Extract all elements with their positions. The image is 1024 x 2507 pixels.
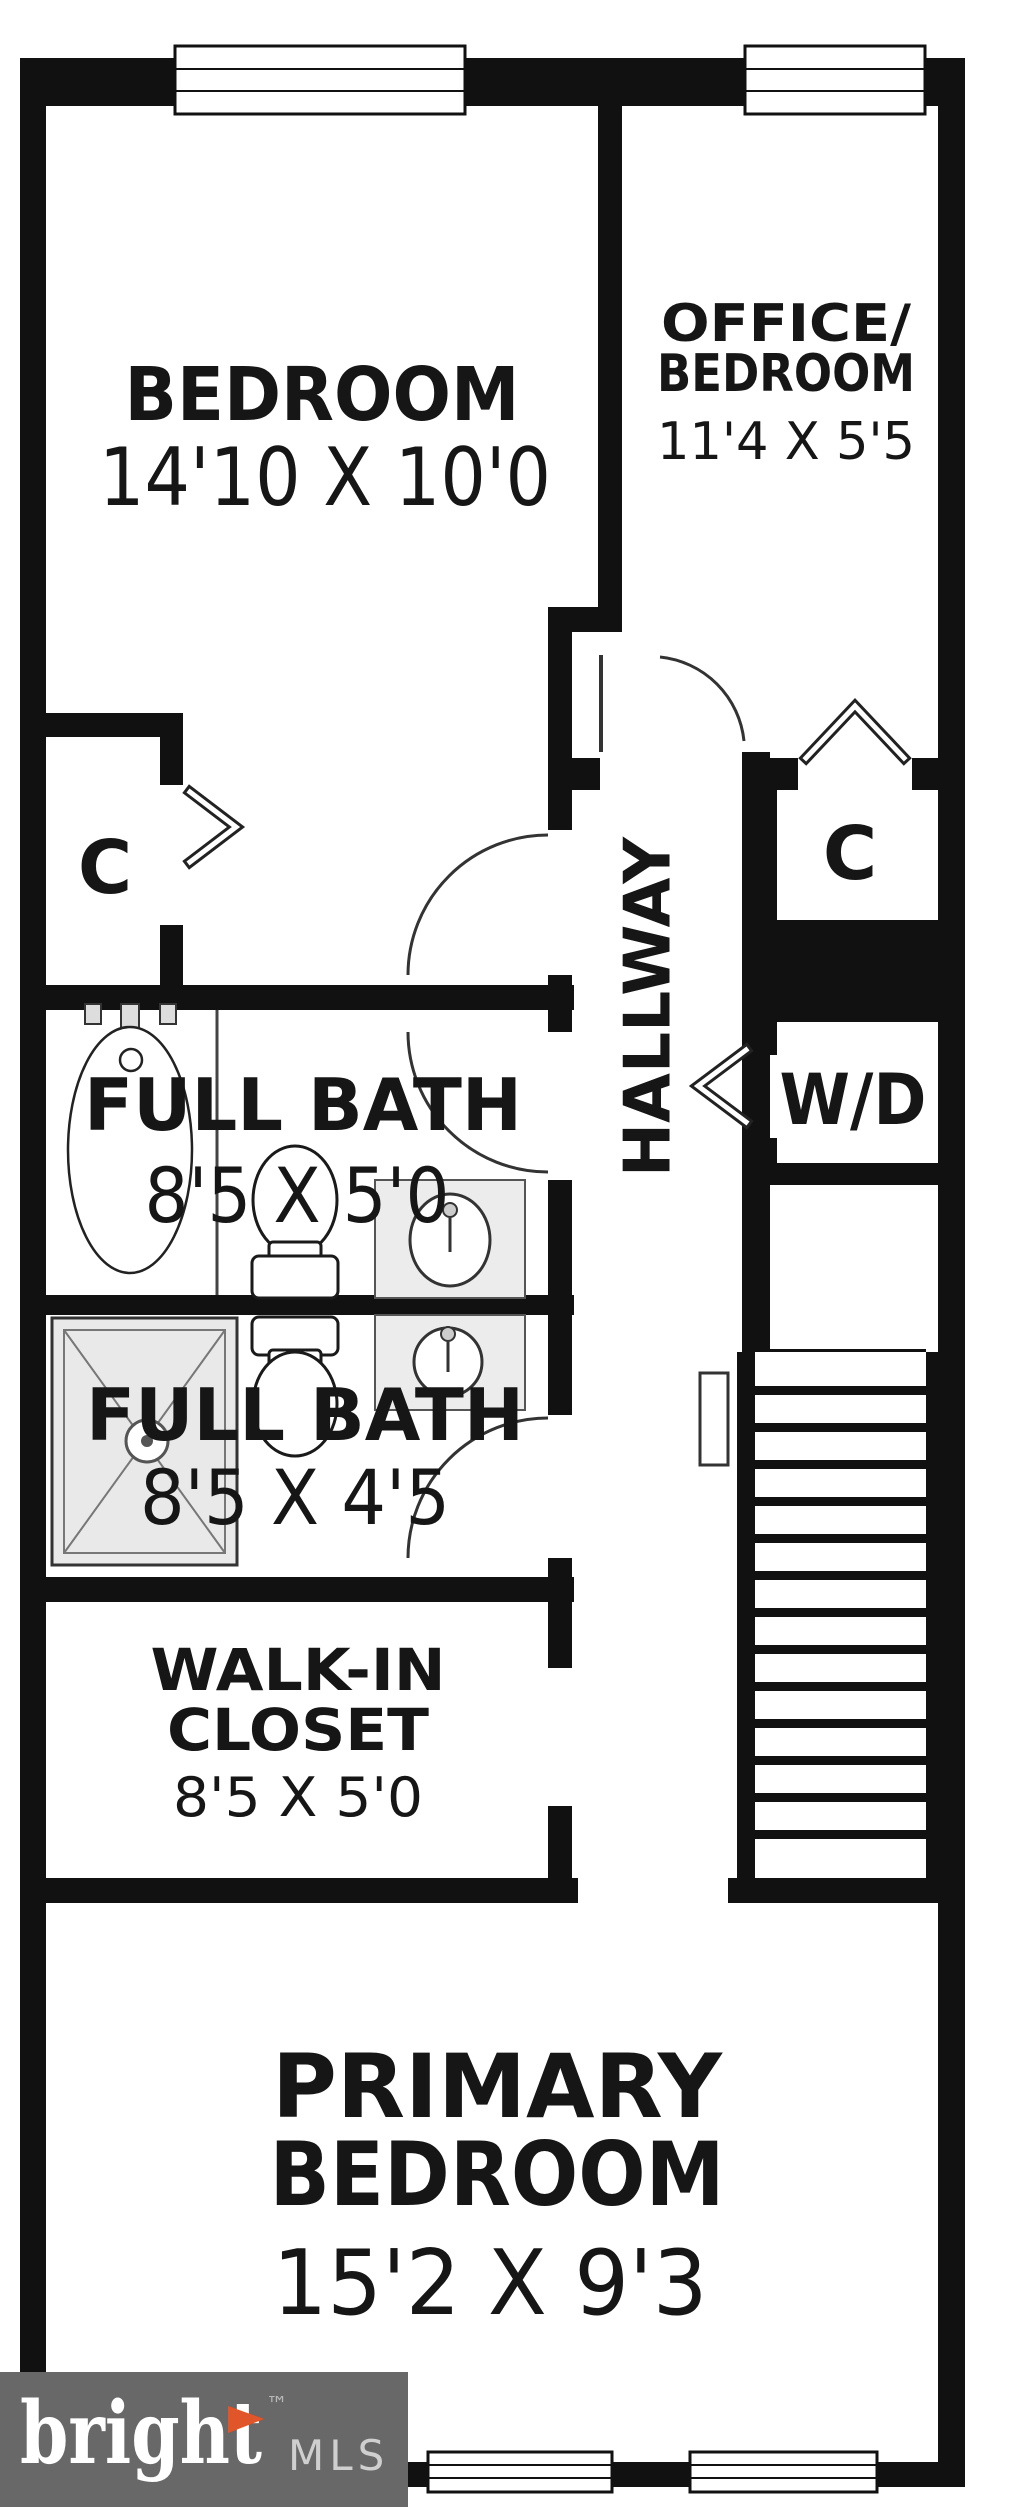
stair-top-edge bbox=[755, 1349, 926, 1352]
door-arc-office bbox=[660, 657, 744, 741]
wall-closet-right-left bbox=[755, 790, 777, 920]
window bbox=[175, 46, 465, 114]
wall-closet-left-top bbox=[45, 713, 183, 737]
bath-lower-dims: 8'5 X 4'5 bbox=[140, 1453, 450, 1542]
bath-upper-label: FULL BATH bbox=[84, 1063, 522, 1147]
window bbox=[428, 2452, 612, 2492]
stair-rail-left bbox=[737, 1352, 755, 1878]
walkin-label-line2: CLOSET bbox=[167, 1696, 429, 1764]
laundry-label: W/D bbox=[780, 1059, 927, 1141]
closet-right-door-chevron bbox=[806, 706, 904, 758]
logo-mls-text: MLS bbox=[288, 2431, 389, 2480]
stair-treads bbox=[755, 1386, 926, 1839]
wall-wd-left bbox=[755, 1138, 777, 1163]
brightmls-logo: bright ™ MLS bbox=[0, 2372, 408, 2507]
office-dims: 11'4 X 5'5 bbox=[657, 412, 915, 472]
door-leaf-office bbox=[599, 655, 603, 752]
window bbox=[690, 2452, 877, 2492]
wall-hall-left bbox=[548, 630, 572, 830]
primary-dims: 15'2 X 9'3 bbox=[273, 2231, 708, 2336]
wall-hall-left bbox=[548, 1558, 572, 1668]
bedroom-label: BEDROOM bbox=[125, 352, 520, 438]
wall-office-bottom bbox=[548, 758, 600, 790]
bath-lower-label: FULL BATH bbox=[86, 1373, 524, 1457]
closet-left-door-chevron bbox=[190, 792, 236, 862]
wall-primary-top bbox=[20, 1878, 578, 1903]
wall-wd-bottom bbox=[742, 1163, 938, 1185]
window bbox=[745, 46, 925, 114]
walkin-label-line1: WALK-IN bbox=[151, 1636, 446, 1704]
hallway-label: HALLWAY bbox=[612, 836, 686, 1177]
primary-label-line2: BEDROOM bbox=[270, 2123, 725, 2226]
office-label-line2: BEDROOM bbox=[657, 344, 915, 404]
bath-upper-dims: 8'5 X 5'0 bbox=[145, 1151, 450, 1240]
closet-right-label: C bbox=[823, 811, 877, 897]
logo-tm-mark: ™ bbox=[266, 2393, 288, 2418]
wall-wd-left bbox=[755, 1022, 777, 1055]
stair-rail-right bbox=[926, 1352, 944, 1878]
wall-office-bottom bbox=[912, 758, 938, 790]
closet-left-label: C bbox=[78, 825, 132, 911]
walkin-dims: 8'5 X 5'0 bbox=[173, 1766, 423, 1829]
wall-walkin-top bbox=[20, 1577, 574, 1602]
floor-plan: BEDROOM 14'10 X 10'0 OFFICE/ BEDROOM 11'… bbox=[0, 0, 1024, 2507]
door-arc-bedroom bbox=[408, 835, 548, 975]
wall-bath-top bbox=[20, 985, 574, 1010]
bedroom-dims: 14'10 X 10'0 bbox=[99, 431, 551, 524]
wall-jog bbox=[548, 607, 622, 632]
wall-right bbox=[938, 58, 965, 2487]
wall-stairs-bottom bbox=[728, 1878, 940, 1903]
wall-closet-left-stub bbox=[160, 737, 183, 785]
logo-brand-text: bright bbox=[20, 2383, 262, 2484]
floor-plan-page: BEDROOM 14'10 X 10'0 OFFICE/ BEDROOM 11'… bbox=[0, 0, 1024, 2507]
void-chase bbox=[755, 920, 938, 1022]
stairs bbox=[700, 1349, 944, 1878]
stair-door-leaf bbox=[700, 1373, 728, 1465]
wall-left bbox=[20, 58, 46, 2487]
wall-divider bbox=[598, 106, 622, 632]
laundry-door-chevron bbox=[698, 1050, 746, 1122]
wall-closet-left-stub bbox=[160, 925, 183, 985]
